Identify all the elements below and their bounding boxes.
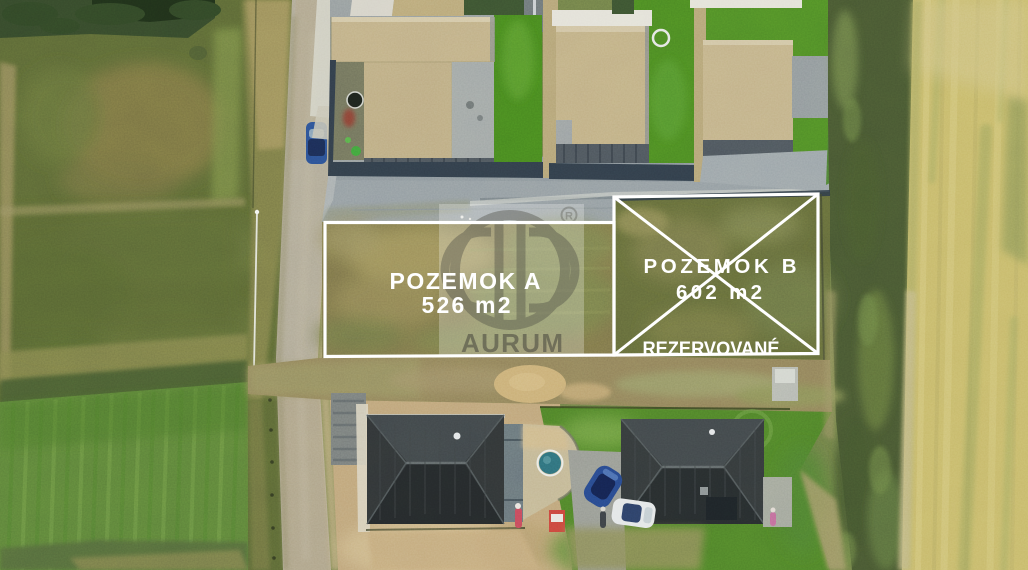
svg-text:R: R (565, 211, 573, 223)
svg-text:POZEMOK A: POZEMOK A (390, 268, 541, 294)
svg-text:POZEMOK B: POZEMOK B (644, 255, 797, 278)
svg-text:REZERVOVANÉ: REZERVOVANÉ (643, 337, 780, 360)
svg-text:AURUM: AURUM (461, 328, 563, 358)
